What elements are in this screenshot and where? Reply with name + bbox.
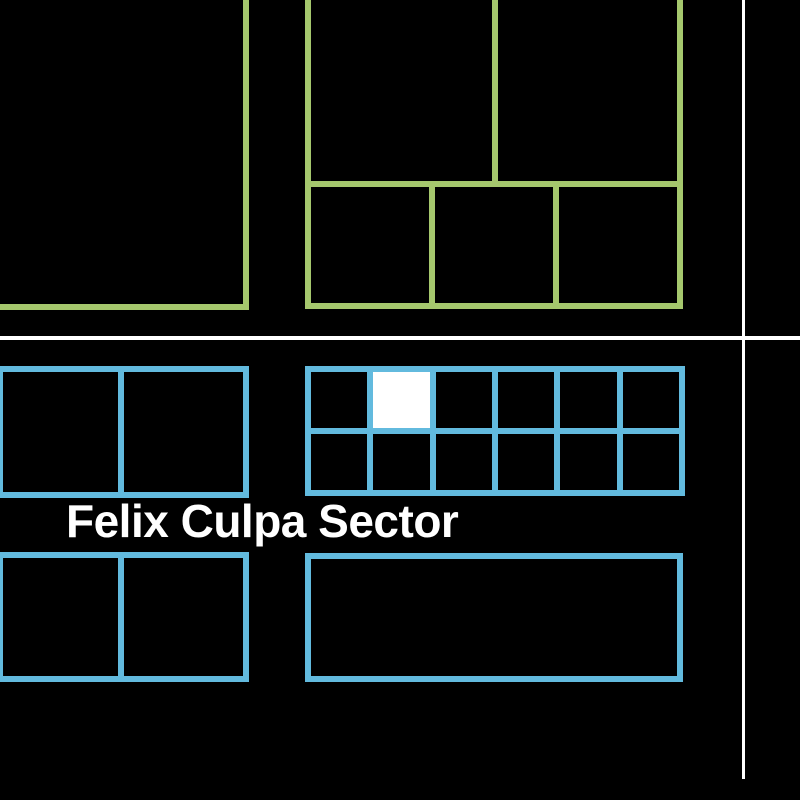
grid-cell[interactable] xyxy=(436,372,492,428)
grid-cell[interactable] xyxy=(623,372,679,428)
room-green-complex[interactable] xyxy=(305,0,683,309)
room-blue-wide[interactable] xyxy=(305,553,683,682)
room-blue-pair-lower[interactable] xyxy=(0,552,249,682)
grid-cell[interactable] xyxy=(436,434,492,490)
grid-cell[interactable] xyxy=(311,434,367,490)
sector-divider-vertical-line xyxy=(742,0,745,779)
grid-cell[interactable] xyxy=(560,434,616,490)
grid-cell[interactable] xyxy=(373,434,429,490)
grid-cell[interactable] xyxy=(311,372,367,428)
room-divider-vertical-bottom-1 xyxy=(429,187,435,303)
grid-cell[interactable] xyxy=(560,372,616,428)
sector-divider-horizontal-line xyxy=(0,336,800,340)
room-divider-vertical-bottom-2 xyxy=(553,187,559,303)
room-divider-vertical xyxy=(118,372,124,492)
grid-cell[interactable] xyxy=(498,434,554,490)
grid-cell[interactable] xyxy=(623,434,679,490)
room-divider-vertical-top xyxy=(492,0,498,181)
room-blue-pair-upper[interactable] xyxy=(0,366,249,498)
room-divider-vertical xyxy=(118,558,124,676)
sector-label: Felix Culpa Sector xyxy=(66,498,458,544)
grid-cell-highlighted[interactable] xyxy=(373,372,429,428)
map-canvas: Felix Culpa Sector xyxy=(0,0,800,800)
room-green-large[interactable] xyxy=(0,0,249,310)
grid-cell[interactable] xyxy=(498,372,554,428)
room-blue-cell-grid[interactable] xyxy=(305,366,685,496)
room-divider-horizontal xyxy=(311,181,677,187)
